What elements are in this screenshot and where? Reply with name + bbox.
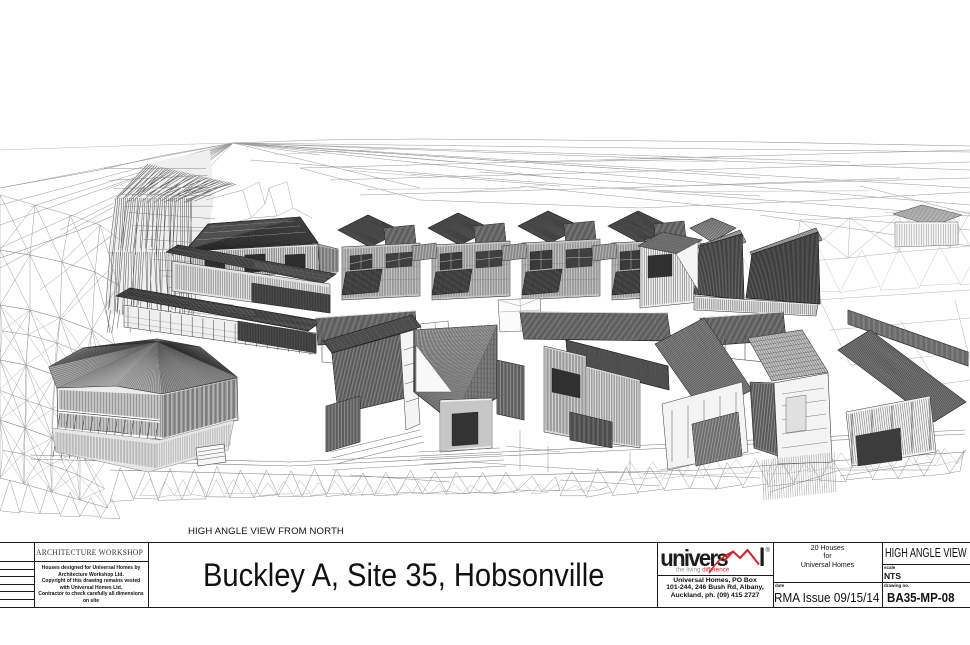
svg-text:the living difference: the living difference [676, 567, 730, 574]
svg-text:®: ® [765, 547, 770, 554]
